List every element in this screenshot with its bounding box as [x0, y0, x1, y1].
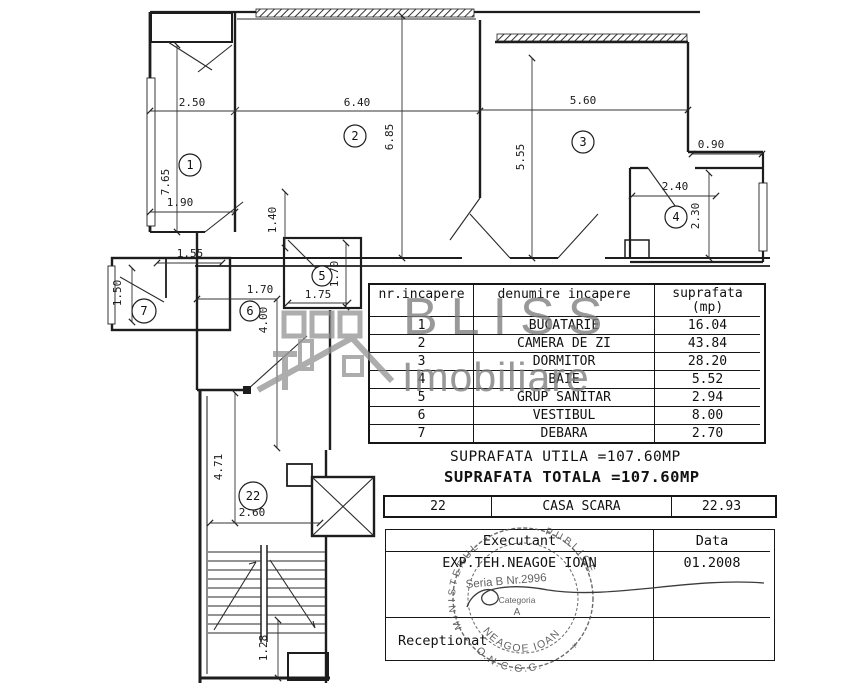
dimension-label: 1.28: [257, 635, 270, 662]
door-swing-room3: [450, 198, 480, 240]
table-row: 6 VESTIBUL 8.00: [370, 406, 764, 424]
dimension-label: 0.90: [698, 138, 725, 151]
dimension-label: 1.50: [111, 280, 124, 307]
door-swings-bottom-wall: [470, 214, 598, 258]
dimension-label: 5.60: [570, 94, 597, 107]
table-row: 1 BUCATARIE 16.04: [370, 316, 764, 334]
receptionat-value-empty: [654, 618, 770, 660]
room-number-label: 22: [246, 489, 260, 503]
executant-value: EXP.TEH.NEAGOE IOAN: [386, 552, 654, 618]
dimension-label: 5.55: [514, 144, 527, 171]
suprafata-totala-total: SUPRAFATA TOTALA =107.60MP: [444, 468, 700, 486]
header-nr-incapere: nr.incapere: [370, 285, 474, 316]
header-denumire: denumire incapere: [474, 285, 655, 316]
dimension-label: 6.40: [344, 96, 371, 109]
dimension-label: 4.71: [212, 454, 225, 481]
receptionat-label: Receptionat: [386, 618, 654, 660]
table-row: 4 BAIE 5.52: [370, 370, 764, 388]
dimension-label: 1.70: [247, 283, 274, 296]
suprafata-utila-total: SUPRAFATA UTILA =107.60MP: [450, 449, 681, 465]
stair-landing: [288, 653, 328, 680]
dimension-label: 2.50: [179, 96, 206, 109]
window-band-top: [256, 9, 474, 17]
room-number-label: 5: [318, 269, 325, 283]
room-number-label: 4: [672, 210, 679, 224]
staircase: [208, 545, 326, 642]
room-number-label: 7: [140, 304, 147, 318]
executant-label: Executant: [386, 530, 654, 552]
dimension-label: 1.90: [167, 196, 194, 209]
data-label: Data: [654, 530, 770, 552]
dimension-label: 2.40: [662, 180, 689, 193]
table-header-row: nr.incapere denumire incapere suprafata …: [370, 285, 764, 316]
data-value: 01.2008: [654, 552, 770, 618]
signature-table: Executant Data EXP.TEH.NEAGOE IOAN 01.20…: [385, 529, 775, 661]
door-swing-room1: [205, 202, 243, 232]
window-band-room3: [497, 34, 687, 41]
room-area-table: nr.incapere denumire incapere suprafata …: [368, 283, 766, 444]
window-left: [147, 78, 155, 226]
casa-scara-table: 22 CASA SCARA 22.93: [383, 495, 777, 518]
dimension-label: 2.30: [689, 203, 702, 230]
table-row: 7 DEBARA 2.70: [370, 424, 764, 442]
room-number-label: 2: [351, 129, 358, 143]
room-number-label: 1: [186, 158, 193, 172]
table-row: 2 CAMERA DE ZI 43.84: [370, 334, 764, 352]
dimension-label: 1.40: [266, 207, 279, 234]
casa-scara-row: 22 CASA SCARA 22.93: [385, 497, 775, 516]
dimension-label: 7.65: [159, 169, 172, 196]
dimension-label: 6.85: [383, 124, 396, 151]
elevator: [312, 477, 374, 536]
room7-walls: [112, 258, 230, 330]
room-number-label: 3: [579, 135, 586, 149]
window-room4: [759, 183, 767, 251]
table-row: 5 GRUP SANITAR 2.94: [370, 388, 764, 406]
floorplan-sheet: 2.506.405.606.855.557.651.901.401.551.50…: [0, 0, 848, 688]
room-number-label: 6: [246, 304, 253, 318]
table-row: 3 DORMITOR 28.20: [370, 352, 764, 370]
header-suprafata: suprafata (mp): [655, 285, 760, 316]
balcony: [151, 13, 232, 42]
elevator-doorway: [287, 464, 312, 486]
door-swing-room7: [120, 277, 164, 302]
dimension-label: 1.75: [305, 288, 332, 301]
dimension-label: 1.55: [177, 247, 204, 260]
